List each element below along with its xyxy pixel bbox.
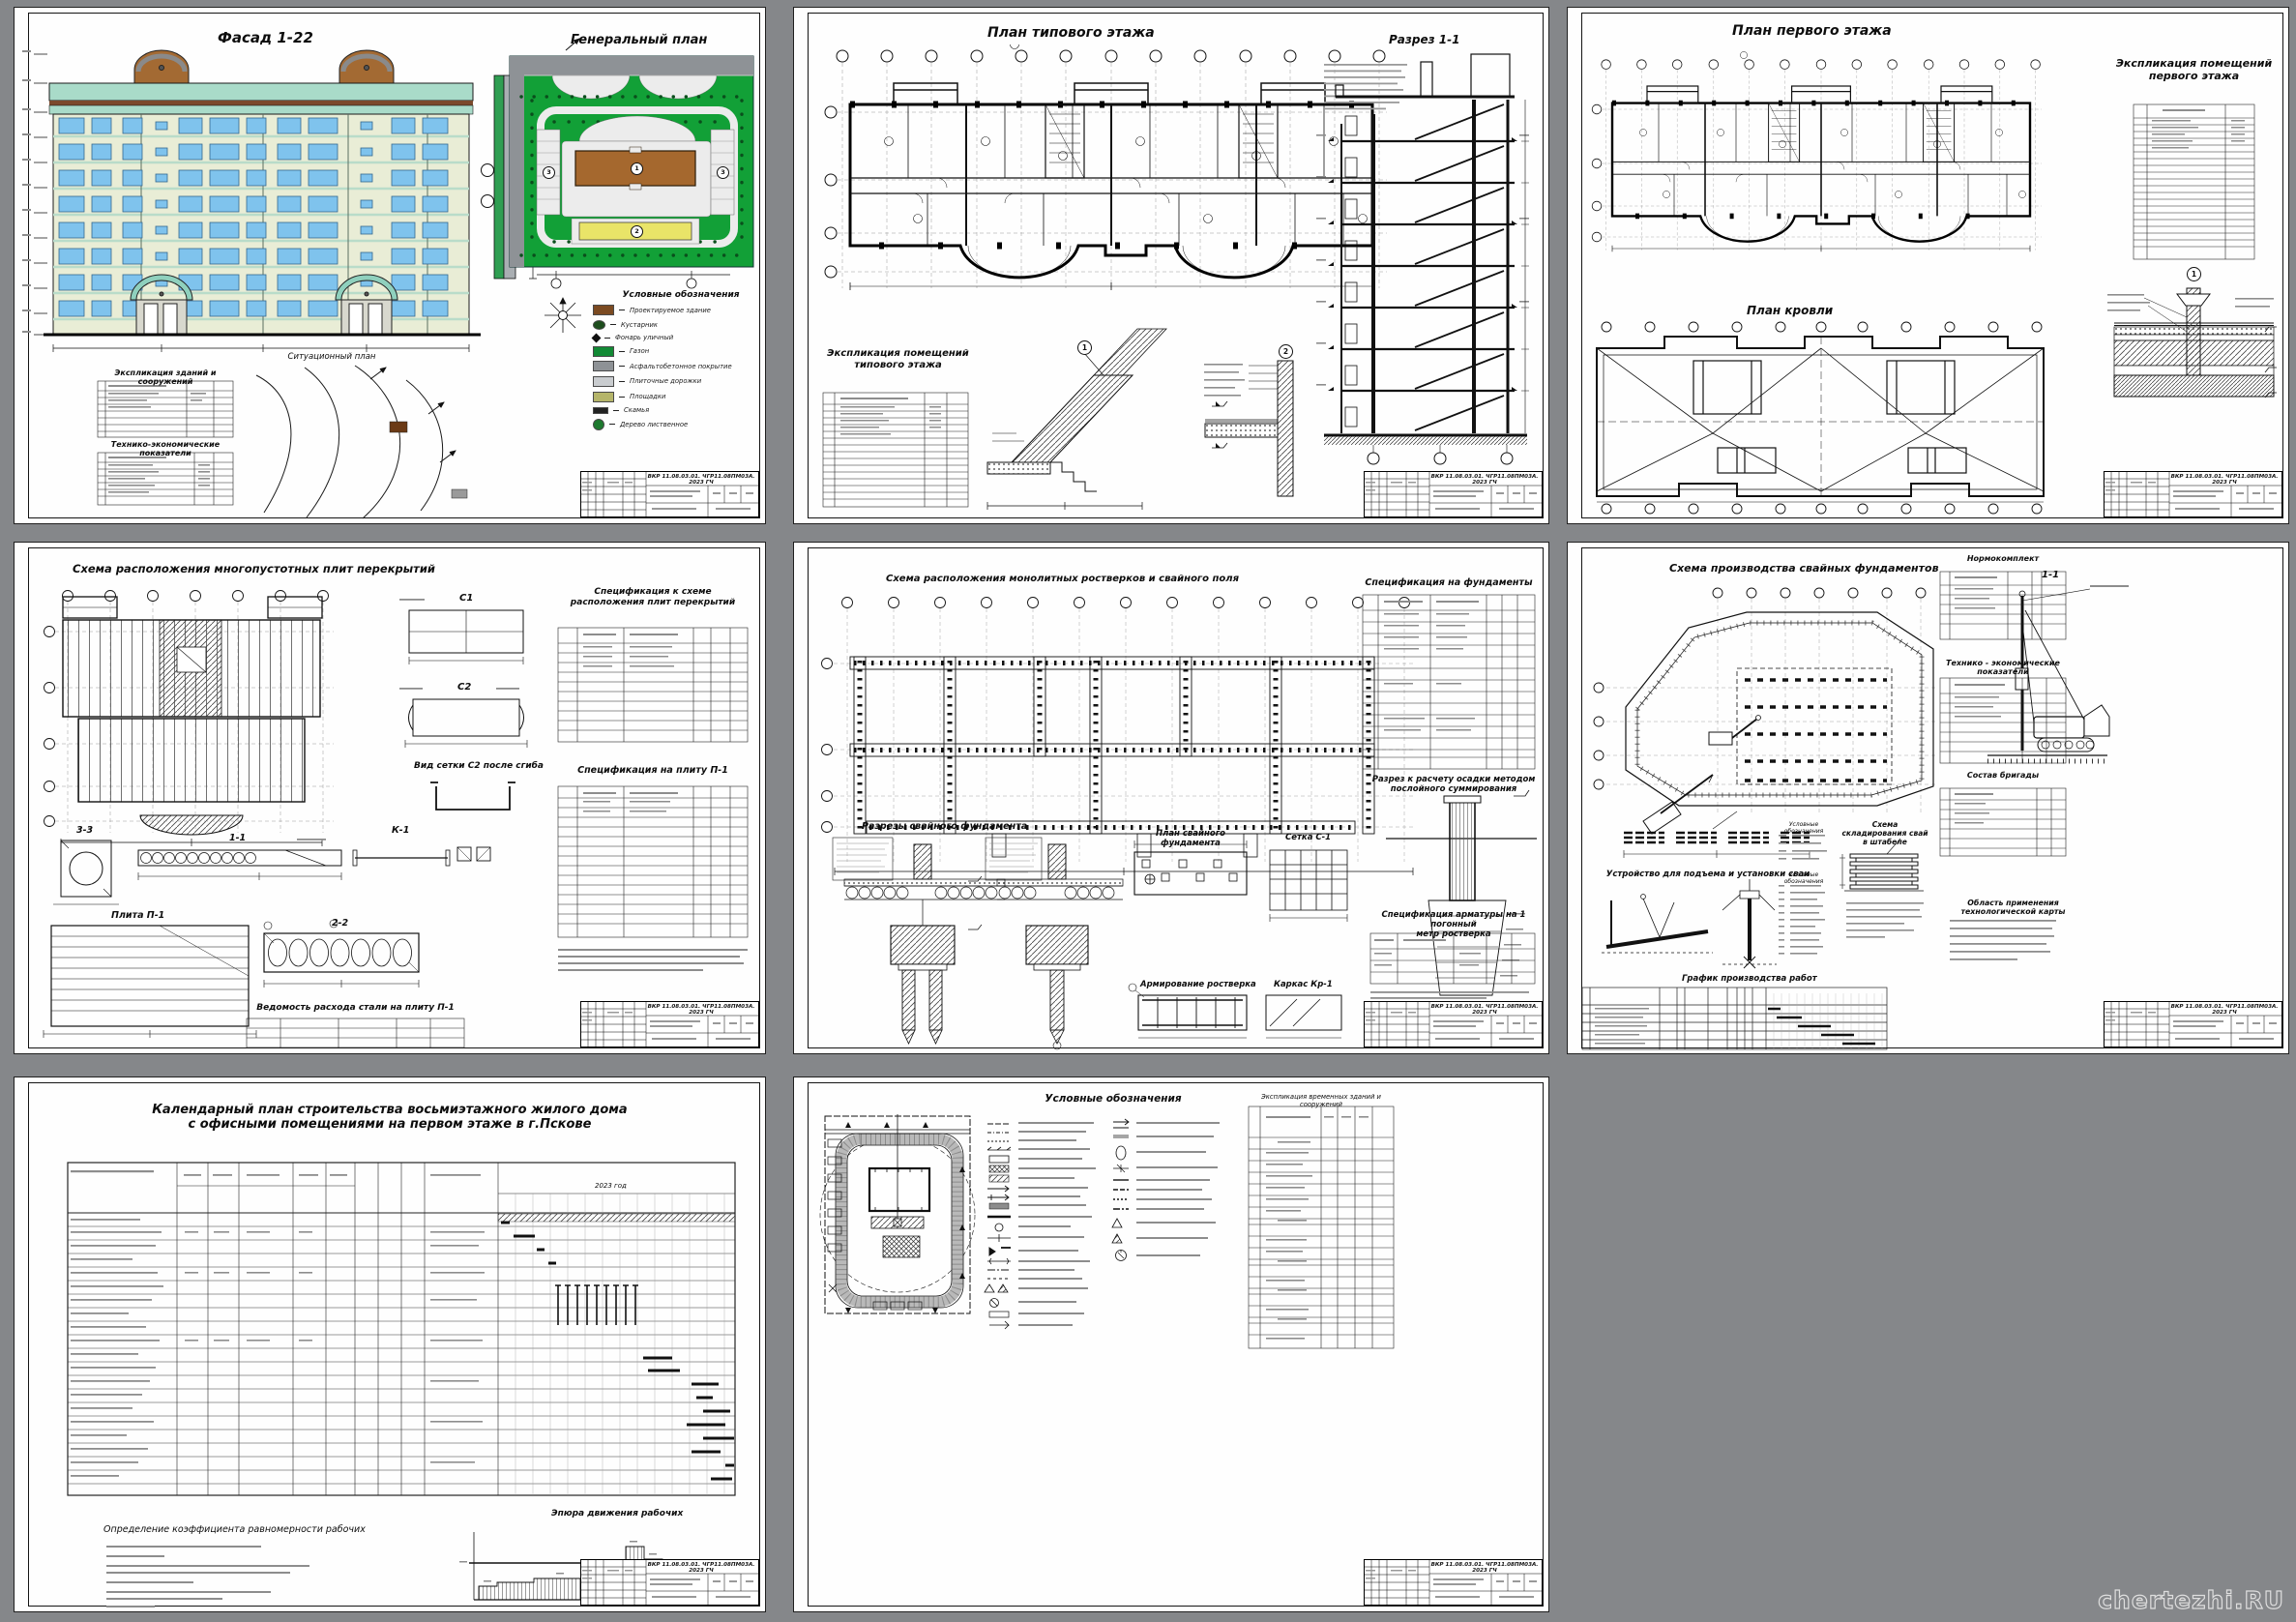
section-title: Разрез 1-1 xyxy=(1389,33,1459,46)
calendar-title: Календарный план строительства восьмиэта… xyxy=(148,1103,632,1133)
document-code: ВКР 11.08.03.01. ЧГР11.08ПМ03А. 2023 ГЧ xyxy=(646,474,756,486)
legend-item: Дерево лиственное xyxy=(593,419,769,430)
spec-title: Спецификация на фундаменты xyxy=(1363,577,1535,588)
title-block: ВКР 11.08.03.01. ЧГР11.08ПМ03А. 2023 ГЧ xyxy=(2104,1001,2282,1047)
application-title: Область применения технологической карты xyxy=(1933,899,2093,916)
plan-title: План первого этажа xyxy=(1732,23,1892,39)
legend-item: Скамья xyxy=(593,406,769,414)
mesh-title: Сетка С-1 xyxy=(1285,833,1331,842)
document-code: ВКР 11.08.03.01. ЧГР11.08ПМ03А. 2023 ГЧ xyxy=(2169,1004,2280,1016)
plan-title: План типового этажа xyxy=(987,25,1155,41)
legend-item: Газон xyxy=(593,346,769,357)
legend-title-2: Условные обозначения xyxy=(1773,871,1835,885)
spec-scheme-title: Спецификация к схеме расположения плит п… xyxy=(556,587,750,607)
sheet-facade-genplan: Фасад 1-22 Генеральный план Ситуационный… xyxy=(14,7,766,524)
genplan-title: Генеральный план xyxy=(571,33,707,47)
frame-k1-label: К-1 xyxy=(392,825,409,836)
steel-table-title: Ведомость расхода стали на плиту П-1 xyxy=(242,1003,469,1014)
legend-item: Плиточные дорожки xyxy=(593,376,769,387)
epure-title: Эпюра движения рабочих xyxy=(551,1509,683,1519)
genplan-building-2-label: 2 xyxy=(631,225,643,238)
title-block: ВКР 11.08.03.01. ЧГР11.08ПМ03А. 2023 ГЧ xyxy=(580,1559,759,1606)
title-block: ВКР 11.08.03.01. ЧГР11.08ПМ03А. 2023 ГЧ xyxy=(2104,471,2282,517)
mesh-c1-label: С1 xyxy=(459,593,473,604)
detail-node-1-label: 1 xyxy=(1077,340,1092,355)
asphalt-swatch-icon xyxy=(593,361,614,371)
title-block: ВКР 11.08.03.01. ЧГР11.08ПМ03А. 2023 ГЧ xyxy=(580,471,759,517)
detail-node-2-label: 2 xyxy=(1279,344,1293,359)
plate-title: Плита П-1 xyxy=(111,910,164,921)
brigade-title: Состав бригады xyxy=(1955,771,2051,780)
section-11-label: 1-1 xyxy=(229,833,246,843)
drawings-canvas: { "page": { "background": "#85878a", "wa… xyxy=(0,0,2296,1622)
section-33-label: 3-3 xyxy=(76,825,93,836)
gantt-year-label: 2023 год xyxy=(595,1182,627,1190)
bench-icon xyxy=(593,407,608,414)
document-code: ВКР 11.08.03.01. ЧГР11.08ПМ03А. 2023 ГЧ xyxy=(2169,474,2280,486)
sheet-pile-foundation: Схема расположения монолитных ростверков… xyxy=(793,542,1549,1054)
legend-item: Фонарь уличный xyxy=(593,334,769,341)
first-floor-roof-drawing xyxy=(1568,8,2288,523)
reinforcement-title: Армирование ростверка xyxy=(1140,980,1256,989)
title-block: ВКР 11.08.03.01. ЧГР11.08ПМ03А. 2023 ГЧ xyxy=(1364,471,1543,517)
pile-production-drawing xyxy=(1568,543,2288,1053)
document-code: ВКР 11.08.03.01. ЧГР11.08ПМ03А. 2023 ГЧ xyxy=(646,1004,756,1016)
shrub-icon xyxy=(593,320,605,330)
roof-node-label: 1 xyxy=(2187,267,2201,281)
frame-title: Каркас Кр-1 xyxy=(1274,980,1333,989)
tree-icon xyxy=(593,419,604,430)
mesh-bent-title: Вид сетки С2 после сгиба xyxy=(401,761,556,772)
tep-table-title: Технико-экономические показатели xyxy=(88,440,243,458)
title-block: ВКР 11.08.03.01. ЧГР11.08ПМ03А. 2023 ГЧ xyxy=(1364,1559,1543,1606)
explication-title: Экспликация помещений первого этажа xyxy=(2105,58,2283,83)
genplan-parking-label: 3 xyxy=(543,166,555,179)
title-block: ВКР 11.08.03.01. ЧГР11.08ПМ03А. 2023 ГЧ xyxy=(580,1001,759,1047)
ground-swatch-icon xyxy=(593,392,614,402)
rebar-spec-title: Спецификация арматуры на 1 погонныйметр … xyxy=(1367,910,1541,939)
site-plan-drawing xyxy=(794,1077,1548,1611)
lawn-swatch-icon xyxy=(593,346,614,357)
legend-item: Проектируемое здание xyxy=(593,305,769,315)
legend-item: Асфальтобетонное покрытие xyxy=(593,361,769,371)
sheet-site-plan: Условные обозначения Экспликация временн… xyxy=(793,1076,1549,1612)
watermark: chertezhi.RU xyxy=(2098,1586,2284,1614)
sheet-first-floor-roof: План первого этажа Экспликация помещений… xyxy=(1567,7,2289,524)
facade-title: Фасад 1-22 xyxy=(218,29,313,46)
legend-title-1: Условные обозначения xyxy=(1773,821,1835,835)
schedule-title: График производства работ xyxy=(1682,974,1817,984)
scheme-title: Схема расположения многопустотных плит п… xyxy=(73,562,435,575)
stacking-title: Схема складирования свайв штабеле xyxy=(1840,821,1929,847)
legend-item: Кустарник xyxy=(593,320,769,330)
explication-title: Экспликация помещений типового этажа xyxy=(818,348,978,371)
legend-title: Условные обозначения xyxy=(1036,1093,1191,1105)
document-code: ВКР 11.08.03.01. ЧГР11.08ПМ03А. 2023 ГЧ xyxy=(646,1562,756,1574)
genplan-parking-label: 3 xyxy=(717,166,729,179)
sheet-pile-production: Схема производства свайных фундаментов 1… xyxy=(1567,542,2289,1054)
tile-swatch-icon xyxy=(593,376,614,387)
section-22-label: 2-2 xyxy=(332,918,348,929)
legend-item: Площадки xyxy=(593,392,769,402)
lantern-icon xyxy=(592,333,602,342)
normokomplekt-title: Нормокомплект xyxy=(1950,554,2056,563)
document-code: ВКР 11.08.03.01. ЧГР11.08ПМ03А. 2023 ГЧ xyxy=(1429,474,1540,486)
title-block: ВКР 11.08.03.01. ЧГР11.08ПМ03А. 2023 ГЧ xyxy=(1364,1001,1543,1047)
explication-title: Экспликация временных зданий и сооружени… xyxy=(1241,1093,1401,1108)
situational-plan-title: Ситуационный план xyxy=(274,352,390,362)
tep-title: Технико - экономические показатели xyxy=(1930,659,2075,677)
buildings-table-title: Экспликация зданий и сооружений xyxy=(88,369,243,387)
sheet-typical-floor-plan: План типового этажа Разрез 1-1 Экспликац… xyxy=(793,7,1549,524)
section-label: 1-1 xyxy=(2042,570,2059,580)
typical-floor-drawing xyxy=(794,8,1548,523)
sections-title: Разрезы свайного фундамента xyxy=(862,821,1027,832)
document-code: ВКР 11.08.03.01. ЧГР11.08ПМ03А. 2023 ГЧ xyxy=(1429,1562,1540,1574)
coefficient-title: Определение коэффициента равномерности р… xyxy=(103,1524,366,1535)
genplan-building-1-label: 1 xyxy=(631,162,643,175)
slabs-drawing xyxy=(15,543,765,1053)
sheet-calendar-plan: Календарный план строительства восьмиэта… xyxy=(14,1076,766,1612)
scheme-title: Схема производства свайных фундаментов xyxy=(1669,562,1939,575)
document-code: ВКР 11.08.03.01. ЧГР11.08ПМ03А. 2023 ГЧ xyxy=(1429,1004,1540,1016)
mesh-c2-label: С2 xyxy=(457,682,471,693)
scheme-title: Схема расположения монолитных ростверков… xyxy=(886,574,1239,584)
legend-title: Условные обозначения xyxy=(593,290,769,300)
settlement-title: Разрез к расчету осадки методомпослойног… xyxy=(1367,775,1541,794)
pile-foundation-drawing xyxy=(794,543,1548,1053)
sheet-slabs-scheme: Схема расположения многопустотных плит п… xyxy=(14,542,766,1054)
genplan-legend: Условные обозначения Проектируемое здани… xyxy=(593,290,769,434)
spec-plate-title: Спецификация на плиту П-1 xyxy=(558,765,748,776)
roof-plan-title: План кровли xyxy=(1747,304,1833,317)
pile-plan-title: План свайного фундамента xyxy=(1128,829,1253,848)
building-swatch-icon xyxy=(593,305,614,315)
wind-rose-icon xyxy=(545,298,581,333)
